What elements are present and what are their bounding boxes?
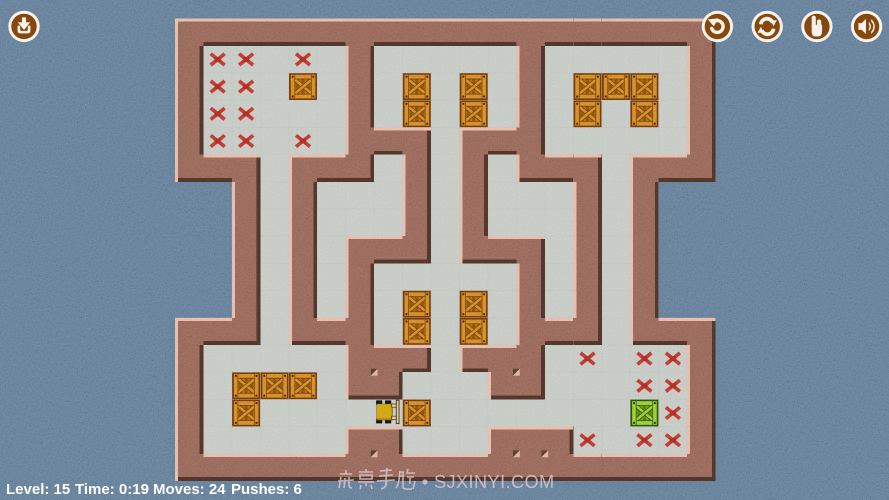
svg-text:Pushes: 6: Pushes: 6: [231, 481, 302, 498]
svg-text:Time: 0:19: Time: 0:19: [75, 481, 149, 498]
svg-text:Level: 15: Level: 15: [6, 481, 70, 498]
svg-text:Moves: 24: Moves: 24: [153, 481, 226, 498]
svg-text:SJXINYI.COM: SJXINYI.COM: [434, 472, 555, 492]
